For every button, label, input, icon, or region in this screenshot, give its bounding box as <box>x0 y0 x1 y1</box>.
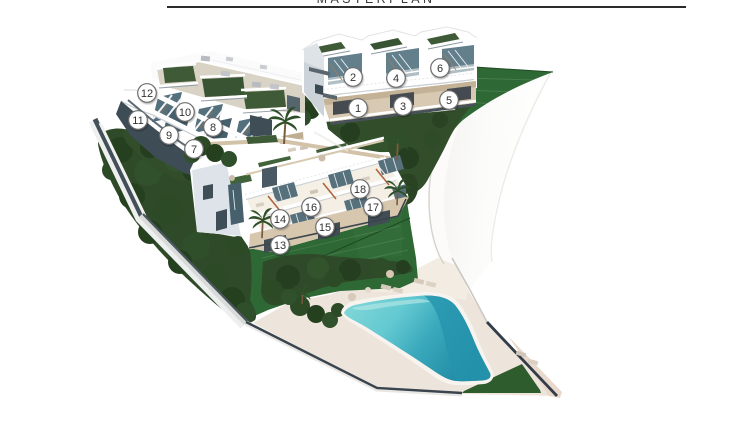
svg-text:5: 5 <box>446 95 452 107</box>
svg-text:7: 7 <box>191 144 197 156</box>
svg-text:11: 11 <box>132 115 143 127</box>
svg-text:15: 15 <box>319 222 331 234</box>
svg-text:17: 17 <box>367 202 379 214</box>
svg-text:14: 14 <box>274 214 286 226</box>
svg-text:8: 8 <box>210 122 216 134</box>
svg-text:9: 9 <box>166 130 172 142</box>
svg-text:2: 2 <box>350 72 356 84</box>
svg-text:1: 1 <box>355 103 361 115</box>
svg-text:3: 3 <box>400 101 406 113</box>
svg-text:16: 16 <box>305 202 317 214</box>
svg-text:6: 6 <box>437 63 443 75</box>
svg-text:12: 12 <box>141 88 153 100</box>
svg-text:13: 13 <box>274 240 286 252</box>
svg-text:4: 4 <box>393 73 399 85</box>
svg-text:10: 10 <box>179 107 191 119</box>
svg-text:18: 18 <box>354 184 366 196</box>
